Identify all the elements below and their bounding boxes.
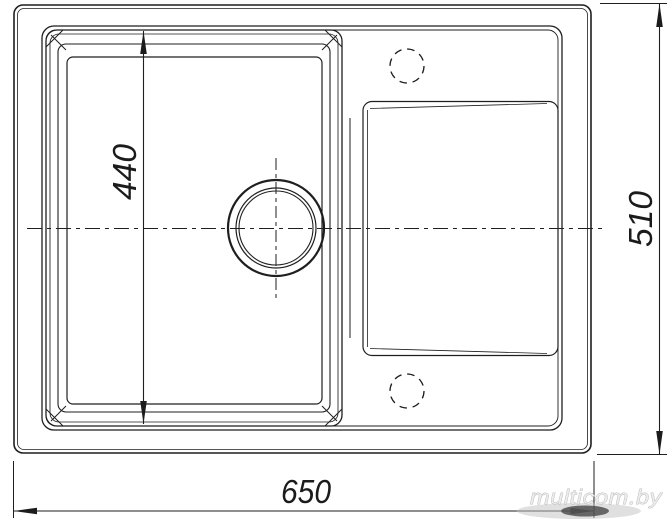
watermark-text: multicom.by <box>530 486 663 509</box>
drawing-root: 440 510 650 multicom.by <box>14 4 668 520</box>
dimension-650: 650 <box>14 461 595 518</box>
dimension-440: 440 <box>106 31 147 424</box>
dimension-650-label: 650 <box>281 473 332 510</box>
dimension-510-arrow-down <box>656 431 663 455</box>
dimension-440-arrow-up <box>140 31 147 54</box>
drainboard-bottom-divider-line <box>370 349 547 354</box>
drainboard-top-divider-line <box>370 104 547 109</box>
dimension-650-arrow-left <box>14 508 38 515</box>
dimension-510: 510 <box>597 4 667 455</box>
tap-hole-bottom <box>390 374 424 408</box>
tap-hole-top <box>390 49 424 83</box>
dimension-510-label: 510 <box>622 190 659 247</box>
watermark: multicom.by <box>517 486 663 519</box>
dimension-440-label: 440 <box>106 143 143 200</box>
drawing-canvas: 440 510 650 multicom.by <box>0 0 668 522</box>
dimension-510-arrow-up <box>656 4 663 28</box>
sink-dimension-diagram: 440 510 650 multicom.by <box>0 0 668 522</box>
bowl-inner-edge <box>67 57 322 404</box>
